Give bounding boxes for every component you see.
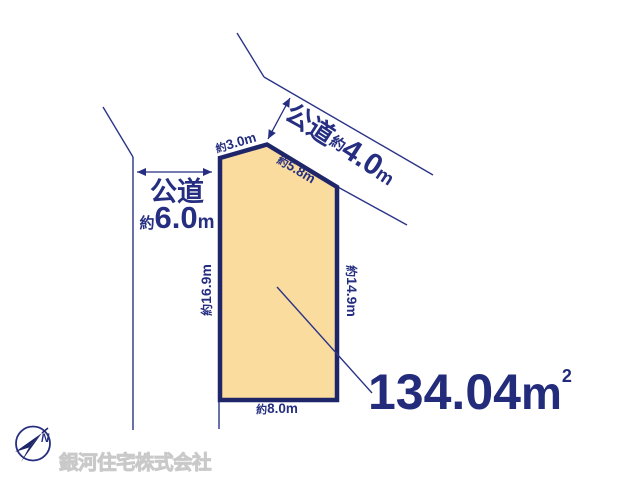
- dim-bottom-about: 約: [256, 402, 267, 416]
- dim-right-about: 約: [344, 265, 359, 277]
- compass-north-label: N: [41, 433, 50, 445]
- land-parcel: [220, 145, 337, 401]
- left-road-width-about: 約: [139, 214, 154, 232]
- left-road-width-value: 6.0: [155, 200, 198, 235]
- road-boundary-line-top-bend: [237, 33, 264, 77]
- left-road-width-unit: m: [198, 212, 215, 233]
- dim-right-value: 14.9m: [344, 277, 360, 317]
- compass: N: [15, 427, 50, 463]
- dimension-label-right-edge: 約14.9m: [344, 265, 360, 317]
- road-boundary-line-left-upper: [103, 107, 133, 157]
- dim-left-about: 約: [199, 304, 214, 316]
- dim-bottom-value: 8.0m: [267, 401, 298, 416]
- dim-left-value: 16.9m: [198, 264, 214, 304]
- dimension-label-left-edge: 約16.9m: [198, 264, 214, 316]
- area-number: 134.04: [368, 364, 521, 420]
- area-value-label: 134.04m2: [368, 364, 572, 420]
- area-unit: m: [521, 367, 562, 419]
- site-plan-svg: 公道 約6.0m 公道約4.0m 約3.0m 約5.8m 約16.9m 約14.…: [0, 0, 640, 480]
- dimension-label-bottom-edge: 約8.0m: [256, 401, 298, 416]
- area-superscript: 2: [562, 366, 572, 386]
- road-boundary-line-top-near: [336, 186, 407, 225]
- site-plan-canvas: 公道 約6.0m 公道約4.0m 約3.0m 約5.8m 約16.9m 約14.…: [0, 0, 640, 480]
- company-watermark: 銀河住宅株式会社: [59, 451, 212, 474]
